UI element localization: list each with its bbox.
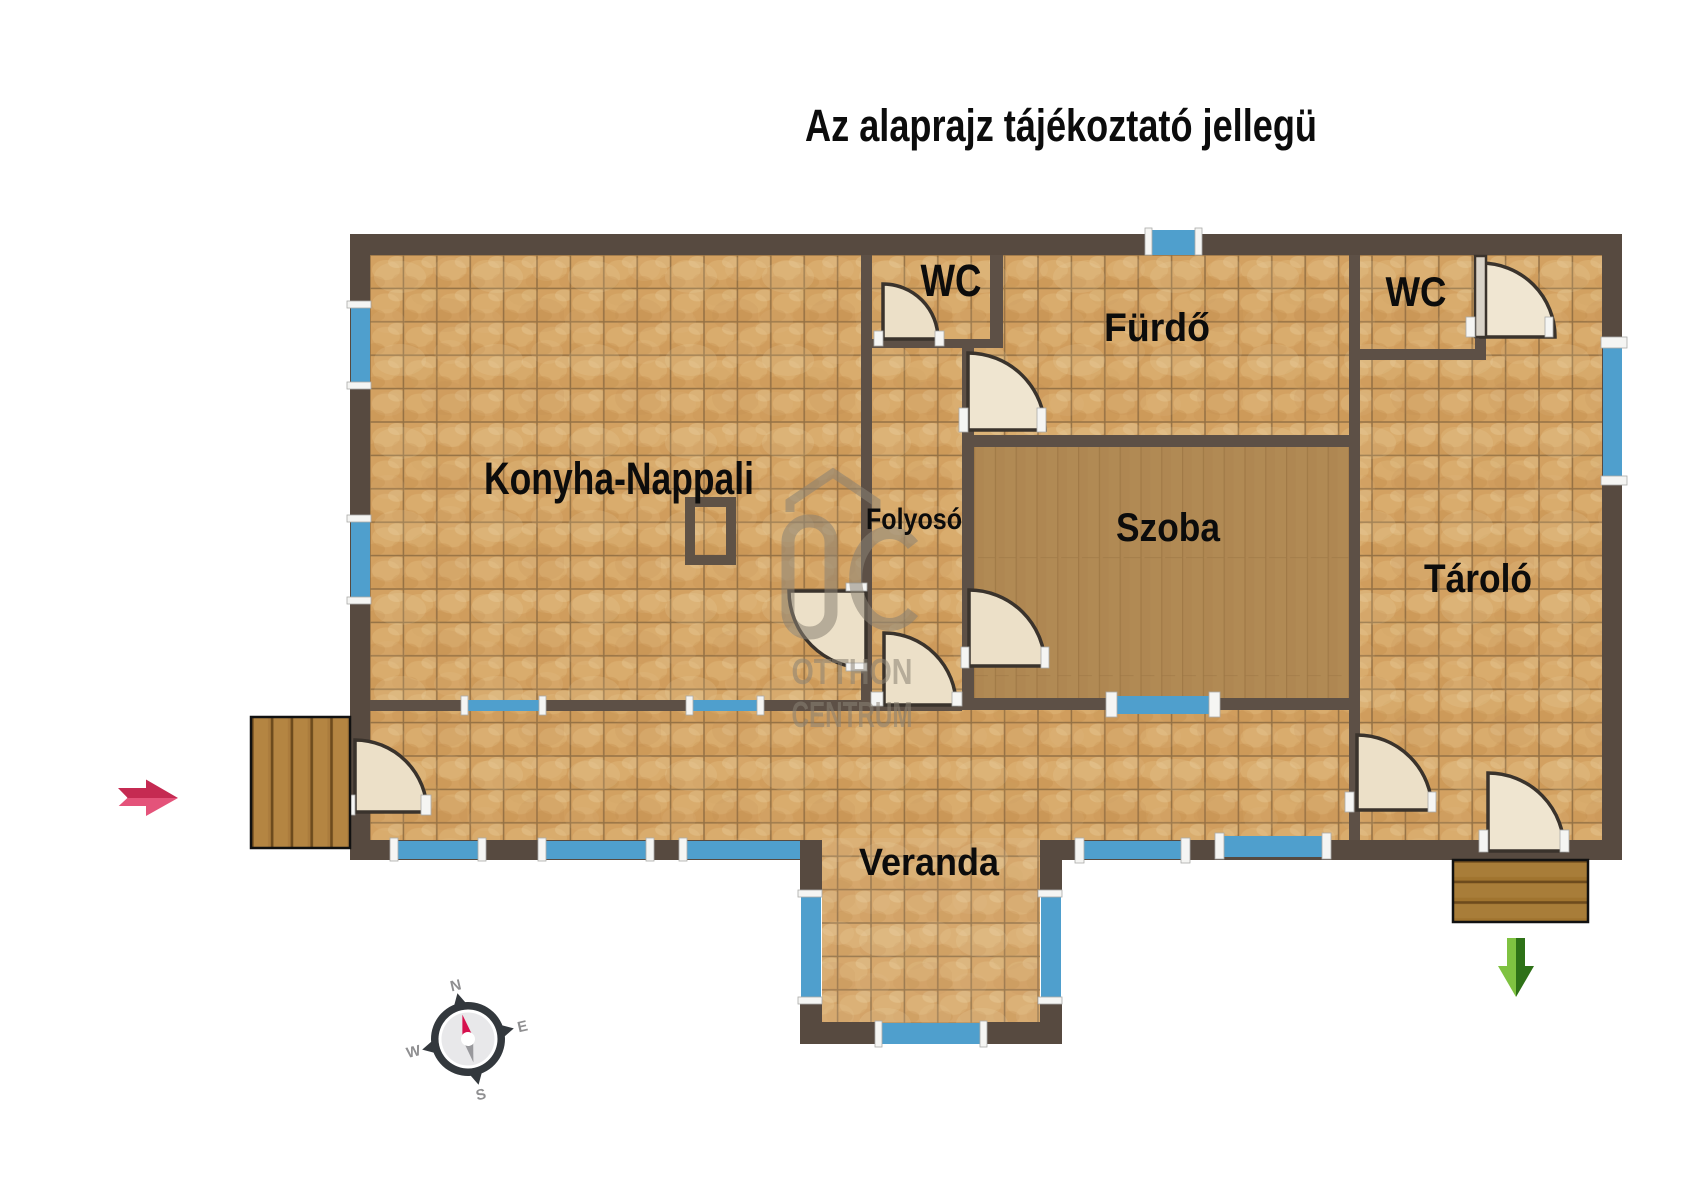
svg-text:OTTHON: OTTHON <box>792 651 913 692</box>
svg-text:Szoba: Szoba <box>1116 506 1221 550</box>
svg-text:WC: WC <box>1386 268 1447 315</box>
svg-text:Veranda: Veranda <box>859 842 1000 884</box>
svg-text:Fürdő: Fürdő <box>1104 306 1210 350</box>
svg-text:WC: WC <box>921 255 982 306</box>
svg-text:Az alaprajz tájékoztató jelleg: Az alaprajz tájékoztató jellegü <box>805 100 1317 151</box>
svg-text:Konyha-Nappali: Konyha-Nappali <box>484 453 754 504</box>
svg-text:Tároló: Tároló <box>1424 557 1532 601</box>
svg-text:Folyosó: Folyosó <box>866 503 962 536</box>
svg-text:CENTRUM: CENTRUM <box>792 694 913 735</box>
